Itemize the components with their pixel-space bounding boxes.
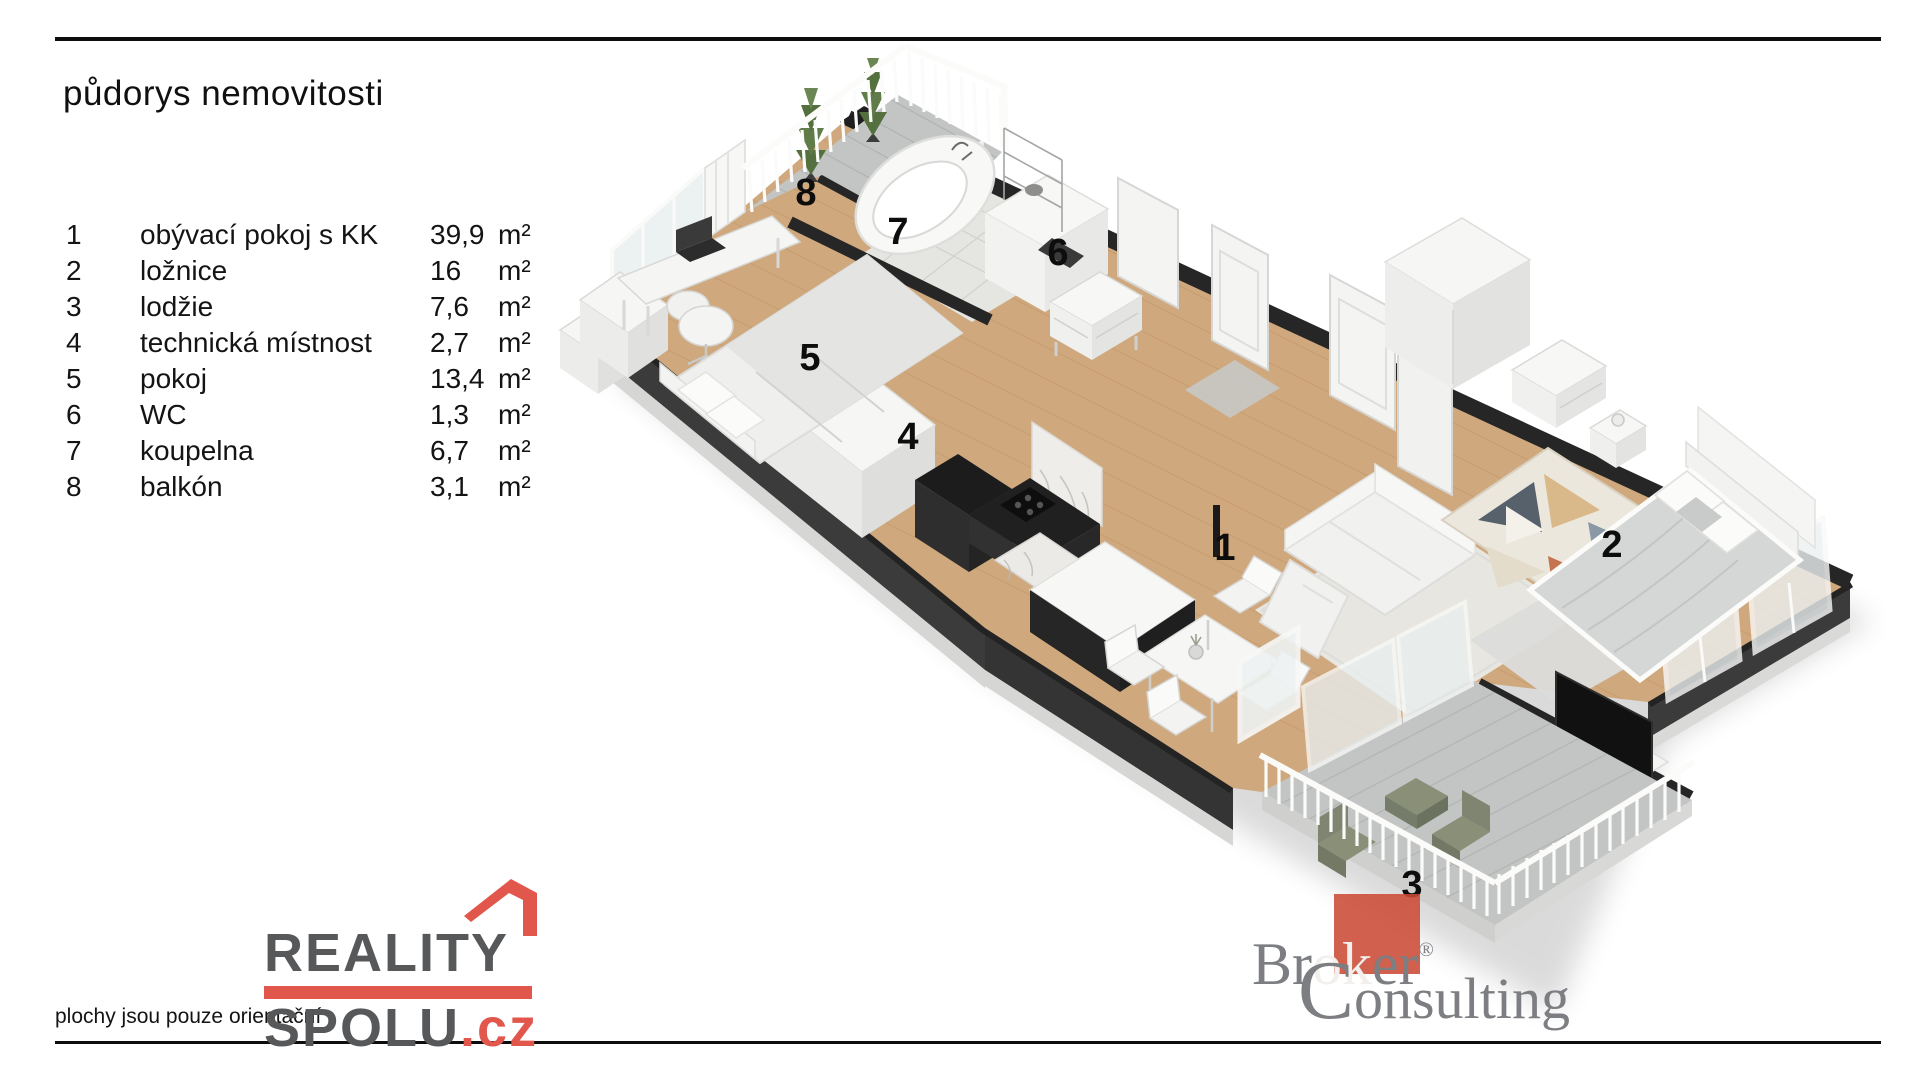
room-number-label: 1 [1214, 529, 1235, 567]
consulting-wordmark: Consulting [1298, 958, 1570, 1032]
floor-plan-page: půdorys nemovitosti 1 obývací pokoj s KK… [0, 0, 1920, 1080]
consulting-rest: onsulting [1354, 966, 1570, 1032]
room-number-label: 7 [887, 213, 908, 251]
reality-wordmark: REALITY [264, 928, 509, 978]
room-number-label: 2 [1601, 526, 1622, 564]
floor-plan-3d-rendering [0, 0, 1920, 1080]
room-number-label: 6 [1047, 234, 1068, 272]
room-number-label: 4 [897, 418, 918, 456]
consulting-initial: C [1298, 958, 1354, 1024]
spolu-wordmark: SPOLU.cz [264, 1002, 538, 1054]
bedroom-dresser [1512, 340, 1606, 428]
cz-domain-text: .cz [460, 998, 538, 1058]
spolu-text: SPOLU [264, 998, 460, 1058]
room-number-label: 5 [799, 339, 820, 377]
room-number-label: 8 [795, 174, 816, 212]
